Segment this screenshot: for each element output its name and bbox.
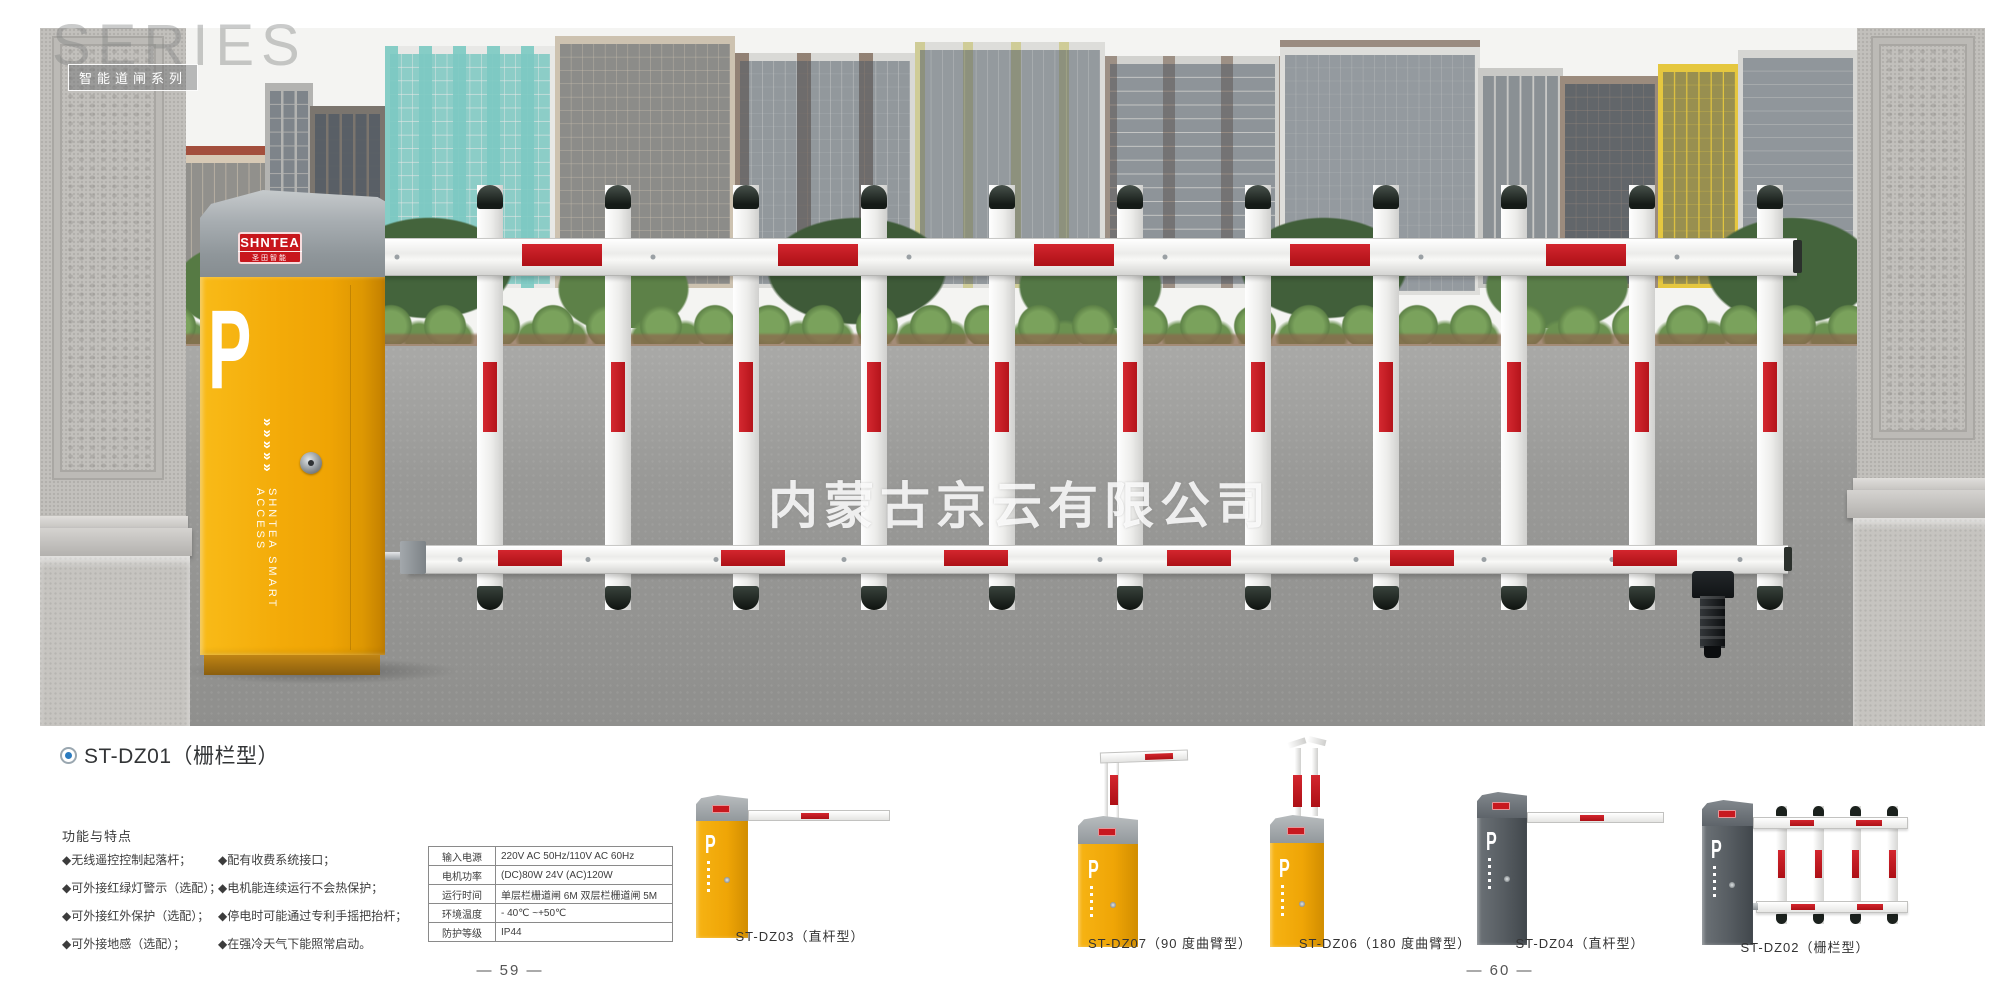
rail-end-cap <box>1784 547 1792 571</box>
thumb-st-dz02: P <box>1702 800 1753 945</box>
pillar-carved-panel <box>52 36 164 480</box>
picket-reflector <box>867 362 881 432</box>
spec-value: IP44 <box>496 923 673 942</box>
door-lock <box>1110 902 1116 908</box>
feature-item: ◆配有收费系统接口； <box>218 846 407 874</box>
rail-reflector <box>1034 244 1114 266</box>
picket-reflector <box>1815 850 1822 878</box>
pillar-carved-panel <box>1871 36 1975 440</box>
support-leg-bracket <box>1692 571 1734 598</box>
pillar-ledge <box>40 516 188 528</box>
boom-connector-block <box>400 541 426 574</box>
machine-side-text: SHNTEA SMART ACCESS <box>254 488 278 653</box>
feature-item: ◆电机能连续运行不会热保护； <box>218 874 407 902</box>
main-product-photo: SHNTEA 圣田智能 P »»»»» SHNTEA SMART ACCESS … <box>40 28 1985 726</box>
door-lock <box>300 452 322 474</box>
brand-subtitle: 圣田智能 <box>238 253 302 263</box>
rail-reflector <box>944 550 1008 566</box>
boom-reflector <box>1145 753 1173 760</box>
table-row: 输入电源 220V AC 50Hz/110V AC 60Hz <box>429 847 673 866</box>
chevron-arrows-icon: »»»»» <box>259 418 276 475</box>
door-seam <box>350 285 351 650</box>
spec-label: 输入电源 <box>429 847 496 866</box>
barrier-gate-machine: SHNTEA 圣田智能 P »»»»» SHNTEA SMART ACCESS <box>200 190 385 675</box>
brand-badge: SHNTEA 圣田智能 <box>238 232 302 264</box>
table-row: 环境温度 - 40℃ ~+50℃ <box>429 904 673 923</box>
feature-item: ◆可外接地感（选配）； <box>62 930 221 958</box>
parking-letter: P <box>1486 828 1497 854</box>
features-column-2: ◆配有收费系统接口； ◆电机能连续运行不会热保护； ◆停电时可能通过专利手摇把抬… <box>218 846 407 958</box>
brand-badge <box>1492 802 1510 810</box>
pillar-base <box>1853 518 1985 726</box>
catalog-page: SHNTEA 圣田智能 P »»»»» SHNTEA SMART ACCESS … <box>0 0 2000 1000</box>
table-row: 运行时间 单层栏栅道闸 6M 双层栏栅道闸 5M <box>429 885 673 904</box>
door-lock <box>1729 882 1735 888</box>
parking-letter: P <box>208 294 251 406</box>
related-model-label: ST-DZ06（180 度曲臂型） <box>1285 933 1485 952</box>
picket-reflector <box>1763 362 1777 432</box>
rail-reflector <box>721 550 785 566</box>
rail-end-cap <box>1793 240 1802 273</box>
spec-value: (DC)80W 24V (AC)120W <box>496 866 673 885</box>
picket-reflector <box>1635 362 1649 432</box>
pillar-base <box>40 556 190 726</box>
rail-reflector <box>778 244 858 266</box>
picket-reflector <box>1778 850 1785 878</box>
thumb-machine-body <box>1477 814 1527 945</box>
spec-label: 电机功率 <box>429 866 496 885</box>
features-column-1: ◆无线遥控控制起落杆； ◆可外接红绿灯警示（选配）； ◆可外接红外保护（选配）；… <box>62 846 221 958</box>
support-leg <box>1700 596 1725 648</box>
picket-reflector <box>995 362 1009 432</box>
rail-reflector <box>1791 904 1815 910</box>
rail-reflector <box>1613 550 1677 566</box>
feature-item: ◆在强冷天气下能照常启动。 <box>218 930 407 958</box>
series-category-tag: 智能道闸系列 <box>68 64 198 91</box>
rail-reflector <box>1167 550 1231 566</box>
feature-item: ◆可外接红外保护（选配）； <box>62 902 221 930</box>
feature-item: ◆可外接红绿灯警示（选配）； <box>62 874 221 902</box>
chevron-dots <box>1090 886 1093 920</box>
spec-value: 220V AC 50Hz/110V AC 60Hz <box>496 847 673 866</box>
chevron-dots <box>1281 885 1284 919</box>
rail-reflector <box>1790 820 1814 826</box>
spec-table: 输入电源 220V AC 50Hz/110V AC 60Hz 电机功率 (DC)… <box>428 846 673 942</box>
thumb-st-dz07: P <box>1078 816 1138 947</box>
pillar-ledge <box>1847 490 1985 518</box>
brand-badge <box>1098 828 1116 836</box>
chevron-dots <box>1488 858 1491 892</box>
post-reflector <box>1311 775 1320 807</box>
picket-reflector <box>739 362 753 432</box>
chevron-dots <box>1713 866 1716 900</box>
related-model-label: ST-DZ04（直杆型） <box>1480 933 1680 952</box>
rail-reflector <box>1857 904 1883 910</box>
related-model-label: ST-DZ07（90 度曲臂型） <box>1070 933 1270 952</box>
parking-letter: P <box>1279 855 1290 881</box>
table-row: 防护等级 IP44 <box>429 923 673 942</box>
thumb-st-dz04: P <box>1477 792 1527 945</box>
related-model-label: ST-DZ02（栅栏型） <box>1705 937 1905 956</box>
rail-reflector <box>1546 244 1626 266</box>
brand-badge <box>1287 827 1305 835</box>
page-number-left: — 59 — <box>430 962 590 979</box>
rail-reflector <box>498 550 562 566</box>
stone-pillar-left <box>40 28 186 726</box>
rail-reflector <box>1856 820 1882 826</box>
folded-boom-tip <box>1308 736 1327 746</box>
door-lock <box>1504 876 1510 882</box>
spec-label: 防护等级 <box>429 923 496 942</box>
title-bullet-icon <box>60 747 77 764</box>
watermark-text: 内蒙古京云有限公司 <box>740 466 1300 538</box>
features-heading: 功能与特点 <box>62 826 132 845</box>
page-number-right: — 60 — <box>1420 962 1580 979</box>
folded-boom-tip <box>1288 737 1307 748</box>
thumb-machine-body <box>696 817 748 938</box>
thumb-machine-body <box>1078 840 1138 947</box>
thumb-st-dz06: P <box>1270 815 1324 947</box>
brand-badge <box>712 805 730 813</box>
thumb-st-dz07-boom <box>1100 749 1188 763</box>
picket-reflector <box>611 362 625 432</box>
boom-reflector <box>1580 815 1604 821</box>
picket-reflector <box>1123 362 1137 432</box>
picket-reflector <box>1852 850 1859 878</box>
brand-name: SHNTEA <box>238 235 302 252</box>
product-title: ST-DZ01（栅栏型） <box>84 740 279 770</box>
picket-reflector <box>1507 362 1521 432</box>
rail-reflector <box>1390 550 1454 566</box>
thumb-st-dz04-boom <box>1527 812 1664 823</box>
spec-value: - 40℃ ~+50℃ <box>496 904 673 923</box>
rail-reflector <box>1290 244 1370 266</box>
spec-label: 运行时间 <box>429 885 496 904</box>
feature-item: ◆无线遥控控制起落杆； <box>62 846 221 874</box>
pillar-ledge <box>40 528 192 556</box>
fence-bottom-rail <box>408 545 1788 574</box>
post-reflector <box>1293 775 1302 807</box>
picket-reflector <box>1889 850 1896 878</box>
machine-base <box>204 655 380 675</box>
door-lock <box>1299 901 1305 907</box>
chevron-dots <box>707 861 710 895</box>
spec-label: 环境温度 <box>429 904 496 923</box>
thumb-st-dz07-post <box>1104 760 1108 818</box>
thumb-st-dz03: P <box>696 795 748 938</box>
thumb-st-dz03-boom <box>748 810 890 821</box>
picket-reflector <box>1379 362 1393 432</box>
post-reflector <box>1110 775 1118 805</box>
parking-letter: P <box>1088 856 1099 882</box>
picket-reflector <box>1251 362 1265 432</box>
table-row: 电机功率 (DC)80W 24V (AC)120W <box>429 866 673 885</box>
spec-value: 单层栏栅道闸 6M 双层栏栅道闸 5M <box>496 885 673 904</box>
picket-reflector <box>483 362 497 432</box>
parking-letter: P <box>1711 836 1722 862</box>
thumb-machine-body <box>1702 822 1753 945</box>
support-leg-foot <box>1704 646 1721 658</box>
rail-reflector <box>522 244 602 266</box>
thumb-fence-top-rail <box>1753 817 1908 829</box>
thumb-fence-bottom-rail <box>1756 901 1908 913</box>
door-lock <box>724 877 730 883</box>
brand-badge <box>1718 810 1736 818</box>
stone-pillar-right <box>1857 28 1985 726</box>
pillar-ledge <box>1853 478 1985 490</box>
related-model-label: ST-DZ03（直杆型） <box>700 926 900 945</box>
parking-letter: P <box>705 831 716 857</box>
feature-item: ◆停电时可能通过专利手摇把抬杆； <box>218 902 407 930</box>
boom-reflector <box>801 813 829 819</box>
